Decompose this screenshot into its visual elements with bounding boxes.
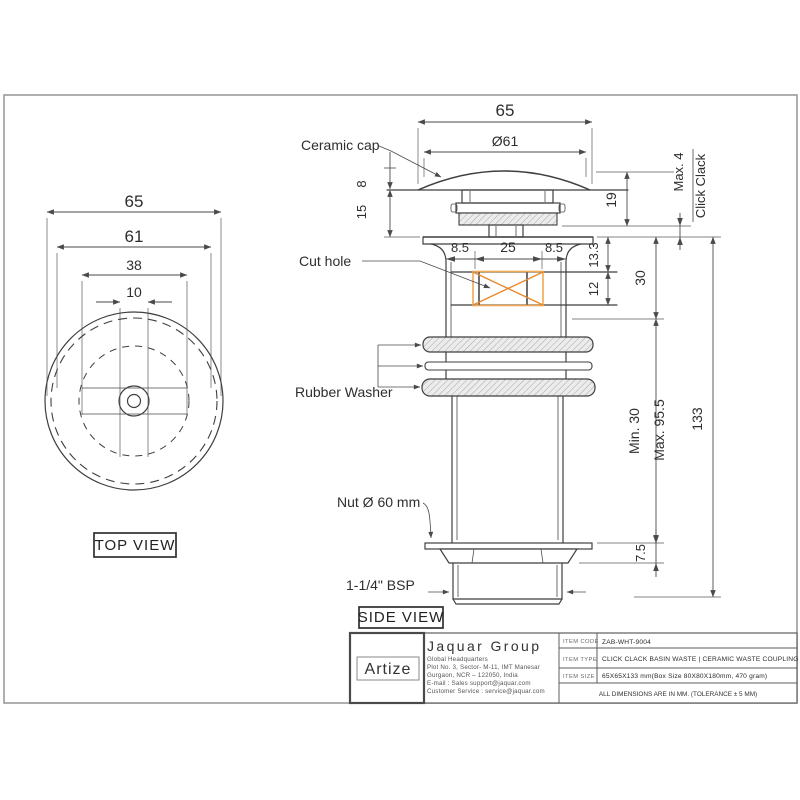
side-view-label: SIDE VIEW [358,609,445,626]
side-dim-8: 8 [354,180,369,187]
company-name: Jaquar Group [427,638,541,654]
rubber-washer-label: Rubber Washer [295,384,393,400]
address-line-2: Plot No. 3, Sector- M-11, IMT Manesar [427,664,540,671]
nut-label: Nut Ø 60 mm [337,494,420,510]
side-dim-133: 133 [689,407,705,431]
side-dim-8p5-right: 8.5 [545,240,563,255]
side-dim-max955: Max. 95.5 [651,399,667,461]
side-dim-19: 19 [603,192,619,208]
spec-sheet: 65 61 38 10 TOP VIEW 65 Ø61 Ceramic cap [0,0,800,800]
item-type-label: ITEM TYPE [563,657,597,663]
item-size-label: ITEM SIZE [563,674,595,680]
item-code-value: ZAB-WHT-9004 [602,639,651,646]
bsp-label: 1-1/4" BSP [346,577,415,593]
side-dim-max4: Max. 4 [671,152,686,191]
backnut [425,543,592,563]
top-dim-38: 38 [126,257,142,273]
title-block: Artize Jaquar Group Global Headquarters … [350,633,799,703]
side-dim-30: 30 [632,270,648,286]
tolerance-note: ALL DIMENSIONS ARE IN MM. (TOLERANCE ± 5… [599,691,757,698]
side-dim-8p5-left: 8.5 [451,240,469,255]
side-dim-65: 65 [496,101,515,120]
side-dim-7p5: 7.5 [633,544,648,562]
side-dim-25: 25 [500,239,516,255]
side-dim-13p3: 13.3 [586,242,601,267]
address-line-5: Customer Service : service@jaquar.com [427,688,545,695]
side-dim-12: 12 [586,282,601,296]
side-dim-61: Ø61 [492,133,519,149]
address-line-3: Gurgaon, NCR – 122050, India [427,672,518,679]
top-view-label: TOP VIEW [95,537,176,554]
item-code-label: ITEM CODE [563,639,599,645]
item-size-value: 65X65X133 mm(Box Size 80X80X180mm, 470 g… [602,673,767,680]
address-line-1: Global Headquarters [427,656,488,663]
side-dim-15: 15 [354,205,369,219]
side-dim-min30: Min. 30 [626,408,642,454]
side-label-click-clack: Click Clack [693,153,708,218]
rubber-washers [422,337,595,396]
item-type-value: CLICK CLACK BASIN WASTE | CERAMIC WASTE … [602,656,799,663]
top-dim-65: 65 [125,192,144,211]
brand-logo: Artize [365,661,412,678]
address-line-4: E-mail : Sales support@jaquar.com [427,680,531,687]
ceramic-cap-label: Ceramic cap [301,137,380,153]
top-dim-10: 10 [126,284,142,300]
top-dim-61: 61 [125,227,144,246]
cut-hole-label: Cut hole [299,253,351,269]
technical-drawing: 65 61 38 10 TOP VIEW 65 Ø61 Ceramic cap [0,0,800,800]
